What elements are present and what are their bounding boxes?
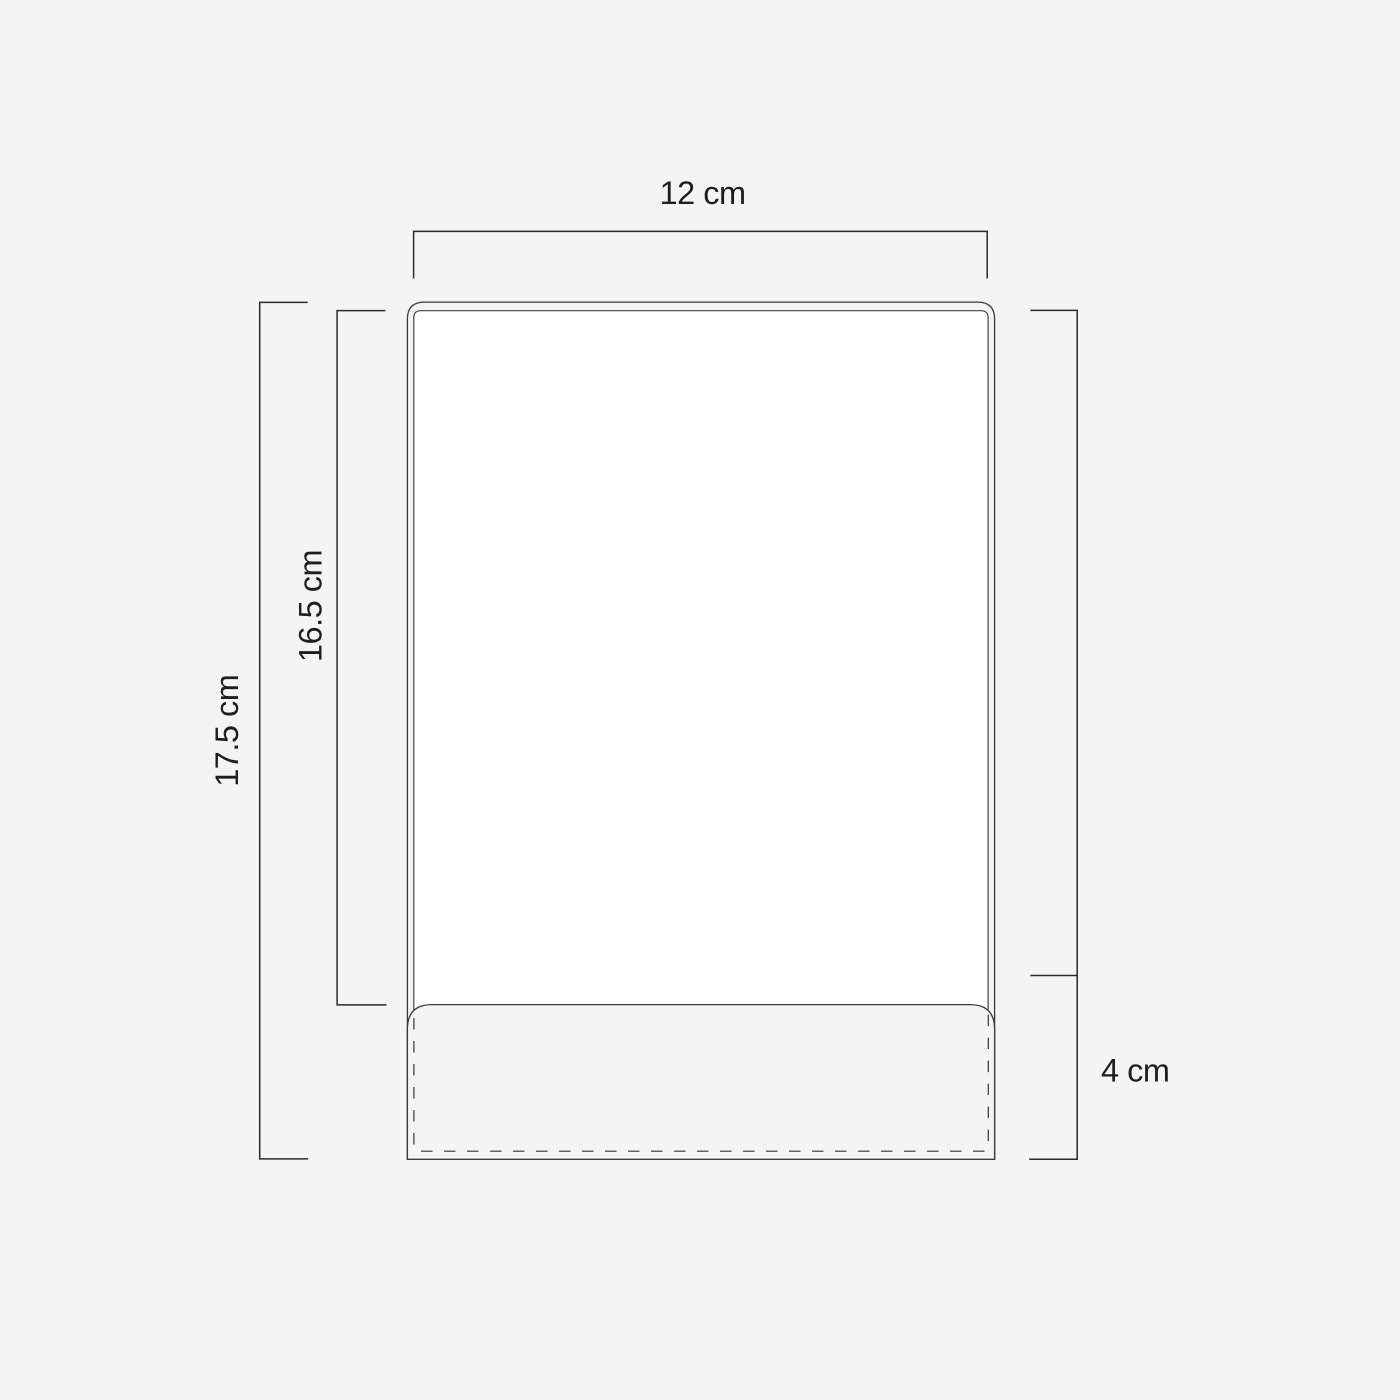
svg-text:12 cm: 12 cm	[660, 175, 746, 211]
svg-text:16.5 cm: 16.5 cm	[293, 550, 329, 662]
svg-text:17.5 cm: 17.5 cm	[209, 675, 245, 787]
svg-text:4 cm: 4 cm	[1101, 1053, 1169, 1089]
